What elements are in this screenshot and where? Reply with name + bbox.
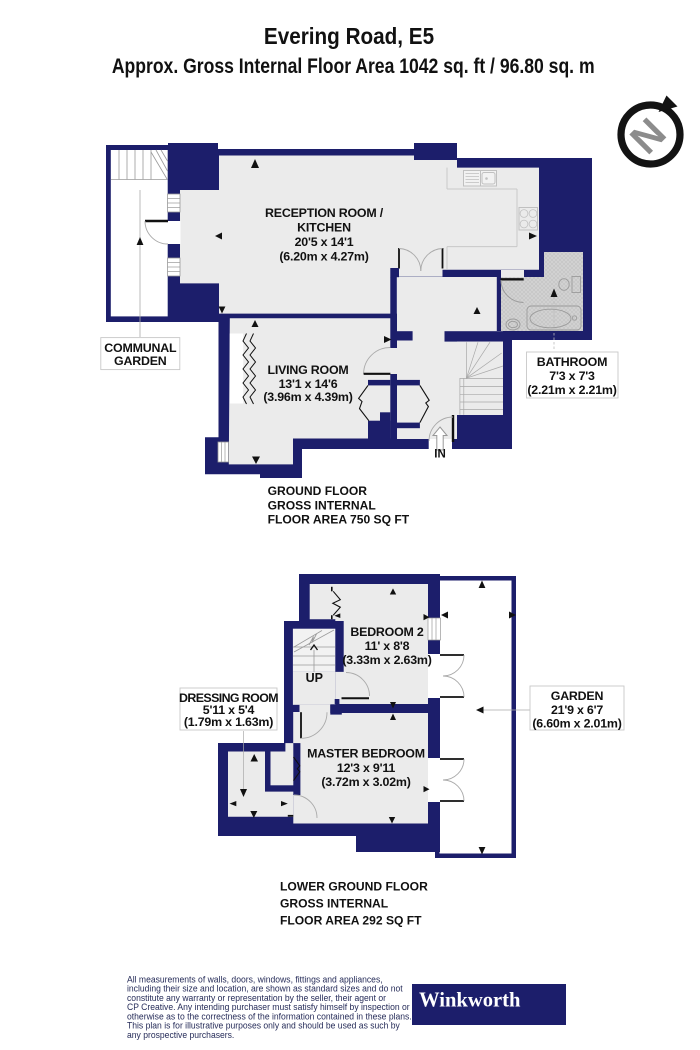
- svg-text:RECEPTION ROOM /: RECEPTION ROOM /: [265, 206, 384, 220]
- svg-text:BEDROOM 2: BEDROOM 2: [350, 625, 424, 639]
- svg-text:LIVING ROOM: LIVING ROOM: [267, 363, 348, 377]
- svg-text:FLOOR AREA 750 SQ FT: FLOOR AREA 750 SQ FT: [268, 513, 410, 527]
- svg-text:(3.33m x 2.63m): (3.33m x 2.63m): [342, 653, 431, 667]
- svg-text:(1.79m x 1.63m): (1.79m x 1.63m): [184, 715, 273, 729]
- svg-text:(3.96m x 4.39m): (3.96m x 4.39m): [263, 390, 352, 404]
- svg-text:(6.20m x 4.27m): (6.20m x 4.27m): [279, 250, 368, 264]
- svg-text:13'1 x 14'6: 13'1 x 14'6: [279, 377, 338, 391]
- svg-text:any prospective purchasers.: any prospective purchasers.: [127, 1030, 234, 1040]
- svg-text:7'3 x 7'3: 7'3 x 7'3: [549, 369, 595, 383]
- svg-text:(3.72m x 3.02m): (3.72m x 3.02m): [321, 775, 410, 789]
- svg-text:MASTER BEDROOM: MASTER BEDROOM: [307, 747, 425, 761]
- svg-text:BATHROOM: BATHROOM: [537, 355, 607, 369]
- svg-text:IN: IN: [434, 449, 446, 461]
- svg-text:(2.21m x 2.21m): (2.21m x 2.21m): [527, 383, 616, 397]
- svg-text:11' x 8'8: 11' x 8'8: [365, 639, 410, 653]
- svg-text:GARDEN: GARDEN: [114, 354, 167, 368]
- svg-text:Winkworth: Winkworth: [419, 990, 521, 1012]
- svg-text:FLOOR AREA 292 SQ FT: FLOOR AREA 292 SQ FT: [280, 914, 422, 928]
- svg-text:12'3 x 9'11: 12'3 x 9'11: [337, 761, 395, 775]
- svg-text:20'5 x 14'1: 20'5 x 14'1: [295, 235, 354, 249]
- svg-text:GARDEN: GARDEN: [551, 689, 604, 703]
- svg-text:LOWER GROUND FLOOR: LOWER GROUND FLOOR: [280, 880, 428, 894]
- svg-text:GROSS INTERNAL: GROSS INTERNAL: [268, 498, 377, 512]
- svg-text:Approx. Gross Internal Floor A: Approx. Gross Internal Floor Area 1042 s…: [112, 54, 595, 78]
- svg-text:GROSS INTERNAL: GROSS INTERNAL: [280, 897, 389, 911]
- svg-text:(6.60m x 2.01m): (6.60m x 2.01m): [532, 717, 621, 731]
- svg-text:UP: UP: [306, 671, 323, 685]
- svg-text:GROUND FLOOR: GROUND FLOOR: [268, 484, 368, 498]
- svg-text:21'9 x 6'7: 21'9 x 6'7: [551, 703, 603, 717]
- svg-text:Evering Road, E5: Evering Road, E5: [264, 23, 434, 49]
- svg-text:KITCHEN: KITCHEN: [297, 221, 351, 235]
